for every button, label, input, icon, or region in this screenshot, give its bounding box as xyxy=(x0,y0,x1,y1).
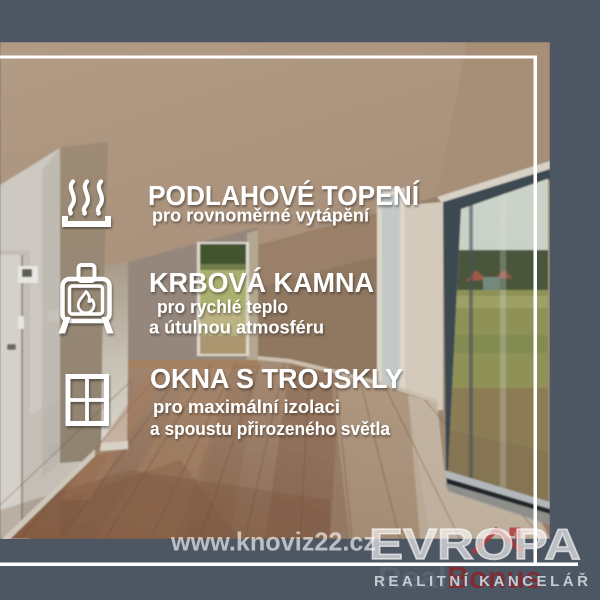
svg-text:REALITNÍ KANCELÁŘ: REALITNÍ KANCELÁŘ xyxy=(374,572,588,590)
svg-text:EVROPA: EVROPA xyxy=(369,520,581,569)
svg-text:KRBOVÁ KAMNA: KRBOVÁ KAMNA xyxy=(149,267,374,298)
svg-text:pro rovnoměrné vytápění: pro rovnoměrné vytápění xyxy=(152,206,370,226)
svg-text:a spoustu přirozeného světla: a spoustu přirozeného světla xyxy=(150,419,391,439)
svg-text:pro maximální izolaci: pro maximální izolaci xyxy=(153,397,340,417)
svg-text:pro rychlé teplo: pro rychlé teplo xyxy=(157,297,288,317)
svg-text:a útulnou atmosféru: a útulnou atmosféru xyxy=(149,318,324,338)
svg-text:www.knoviz22.cz: www.knoviz22.cz xyxy=(170,527,376,557)
svg-text:OKNA S TROJSKLY: OKNA S TROJSKLY xyxy=(150,363,403,394)
